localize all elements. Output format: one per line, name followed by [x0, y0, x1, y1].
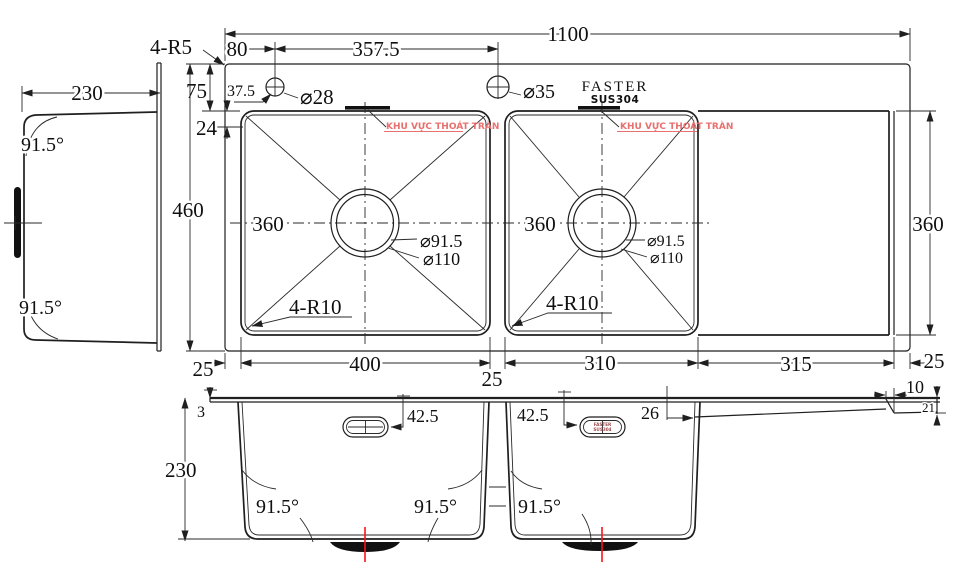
- note-corner-bowl1: 4-R10: [289, 295, 342, 319]
- dim-rim-top: 75: [186, 79, 207, 103]
- dim-bowl1-width: 400: [349, 352, 381, 376]
- dim-bowl-gap: 25: [482, 367, 503, 391]
- overflow-note-bowl1: KHU VỰC THOÁT TRÀN: [386, 120, 499, 132]
- side-view: 230 91.5° 91.5°: [4, 63, 161, 351]
- dim-faucet-inset: 37.5: [227, 83, 255, 100]
- overflow-slot-bowl2: FASTER SUS304: [580, 417, 625, 437]
- dim-margin-right: 25: [924, 349, 945, 373]
- dim-rim-fold: 24: [196, 116, 218, 140]
- dim-bowl2-inner: 360: [524, 212, 556, 236]
- faucet-hole-2: [487, 75, 509, 99]
- overflow-note-bowl2: KHU VỰC THOÁT TRÀN: [620, 120, 733, 132]
- dim-lip-width: 10: [906, 377, 924, 397]
- slot-material: SUS304: [593, 427, 611, 432]
- dim-board-thickness: 26: [641, 403, 659, 423]
- dim-faucet-spacing: 357.5: [352, 37, 399, 61]
- dim-drain-outer-bowl2: ⌀110: [650, 250, 683, 267]
- dim-drainboard-depth: 360: [912, 212, 944, 236]
- brand-logo: FASTER: [582, 79, 649, 95]
- dim-rim-thickness: 3: [197, 404, 205, 421]
- dim-slot-offset-bowl1: 42.5: [407, 406, 439, 426]
- overflow-mark-bowl2: [578, 106, 620, 110]
- overflow-slot-bowl1: [343, 417, 388, 437]
- dim-hole1: ⌀28: [300, 85, 334, 109]
- dim-side-angle-bottom: 91.5°: [19, 297, 62, 319]
- faucet-hole-1: [266, 78, 284, 96]
- dim-drainboard-width: 315: [780, 352, 812, 376]
- dim-hole2: ⌀35: [523, 81, 555, 103]
- dim-slot-offset-bowl2: 42.5: [517, 405, 549, 425]
- dim-margin-left: 25: [193, 357, 214, 381]
- dim-drain-inner-bowl2: ⌀91.5: [647, 233, 685, 250]
- drawing-canvas: 230 91.5° 91.5°: [0, 0, 961, 570]
- dim-bowl2-width: 310: [584, 351, 616, 375]
- dim-overall-depth: 460: [172, 198, 204, 222]
- dim-bowl1-inner: 360: [252, 212, 284, 236]
- dim-side-angle-top: 91.5°: [21, 134, 64, 156]
- dim-section-angle-3: 91.5°: [518, 496, 561, 518]
- overflow-mark-bowl1: [345, 106, 390, 110]
- dim-side-depth: 230: [71, 81, 103, 105]
- dim-drain-outer-bowl1: ⌀110: [423, 249, 460, 269]
- dim-bowl-depth: 230: [165, 458, 197, 482]
- section-view: FASTER SUS304 3 230 42.5 42.5 26 10: [165, 377, 946, 562]
- plan-view: KHU VỰC THOÁT TRÀN KHU VỰC THOÁT TRÀN FA…: [225, 64, 910, 351]
- drain-bowl2-section: [562, 542, 638, 551]
- dim-lip-height: 21: [922, 400, 935, 415]
- dim-section-angle-2: 91.5°: [414, 496, 457, 518]
- note-corner-bowl2: 4-R10: [546, 291, 599, 315]
- dim-drain-inner-bowl1: ⌀91.5: [420, 231, 462, 251]
- brand-material: SUS304: [591, 94, 640, 106]
- dim-section-angle-1: 91.5°: [256, 496, 299, 518]
- dim-faucet-offset: 80: [227, 37, 248, 61]
- note-rim-corner: 4-R5: [150, 35, 192, 59]
- sink-technical-drawing: 230 91.5° 91.5°: [0, 0, 961, 570]
- dim-total-width: 1100: [547, 22, 588, 46]
